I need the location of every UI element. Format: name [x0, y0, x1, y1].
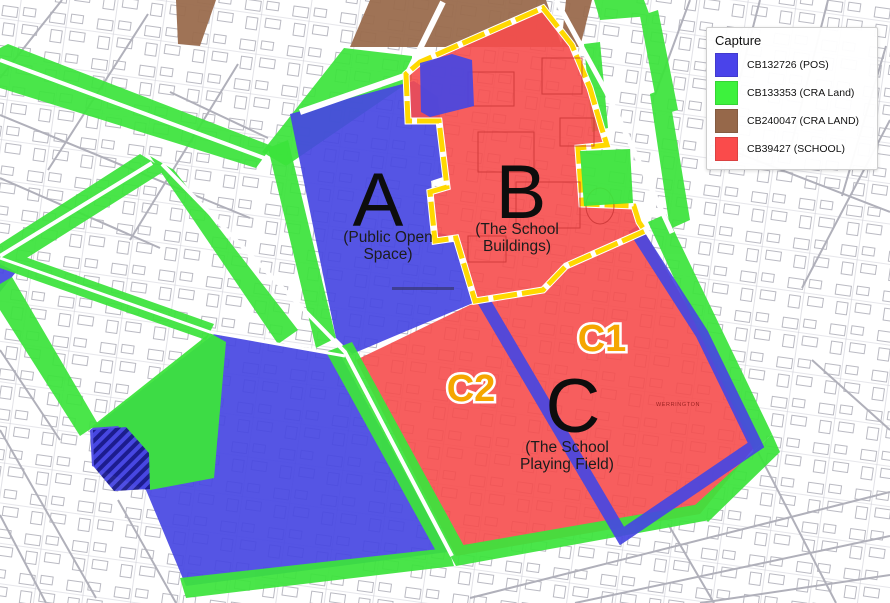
legend-label-pos: CB132726 (POS) [747, 59, 829, 71]
zone-c1-label: C1 [578, 318, 627, 360]
legend-label-cra-land: CB133353 (CRA Land) [747, 87, 854, 99]
legend-label-cra-land-2: CB240047 (CRA LAND) [747, 115, 859, 127]
zone-b-desc-1: (The School [475, 221, 559, 238]
zone-c-letter: C [546, 364, 601, 449]
area-name-text: WERRINGTON [656, 402, 700, 408]
legend-label-school: CB39427 (SCHOOL) [747, 143, 845, 155]
legend-item-school[interactable]: CB39427 (SCHOOL) [715, 137, 869, 161]
zone-a-desc-2: Space) [363, 246, 412, 263]
zone-b-desc-2: Buildings) [483, 238, 551, 255]
legend-title: Capture [715, 33, 869, 48]
tiny-map-label-smudge [392, 287, 454, 290]
legend-swatch-cra-land [715, 81, 738, 105]
legend-swatch-pos [715, 53, 738, 77]
green-notch-in-zone-b[interactable] [580, 149, 633, 206]
legend-item-cra-land[interactable]: CB133353 (CRA Land) [715, 81, 869, 105]
legend-item-pos[interactable]: CB132726 (POS) [715, 53, 869, 77]
zone-c-desc-1: (The School [525, 439, 609, 456]
legend: Capture CB132726 (POS) CB133353 (CRA Lan… [706, 27, 878, 170]
pos-fragment-in-zone-b[interactable] [420, 54, 474, 117]
zone-a-desc-1: (Public Open [343, 229, 433, 246]
zone-c2-label: C2 [447, 368, 496, 410]
legend-swatch-school [715, 137, 738, 161]
map-viewport: A (Public Open Space) B (The School Buil… [0, 0, 890, 603]
legend-item-cra-land-2[interactable]: CB240047 (CRA LAND) [715, 109, 869, 133]
legend-swatch-cra-land-2 [715, 109, 738, 133]
zone-c-desc-2: Playing Field) [520, 456, 614, 473]
